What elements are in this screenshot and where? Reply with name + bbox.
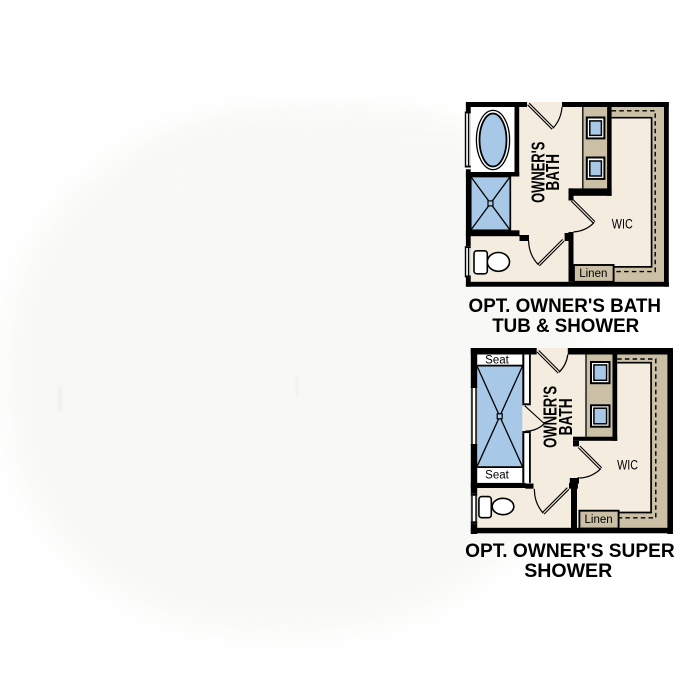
svg-text:Seat: Seat [485, 470, 509, 482]
svg-text:TUB & SHOWER: TUB & SHOWER [492, 315, 639, 337]
svg-text:SHOWER: SHOWER [524, 560, 612, 582]
svg-text:BATH: BATH [556, 398, 576, 435]
svg-text:Seat: Seat [485, 354, 509, 366]
svg-text:OPT. OWNER'S SUPER: OPT. OWNER'S SUPER [465, 540, 675, 562]
svg-text:WIC: WIC [612, 217, 633, 232]
svg-text:WIC: WIC [617, 457, 638, 472]
svg-text:Linen: Linen [579, 268, 607, 280]
svg-text:OPT. OWNER'S BATH: OPT. OWNER'S BATH [469, 295, 662, 317]
svg-text:Linen: Linen [585, 514, 613, 526]
svg-text:BATH: BATH [543, 154, 563, 191]
